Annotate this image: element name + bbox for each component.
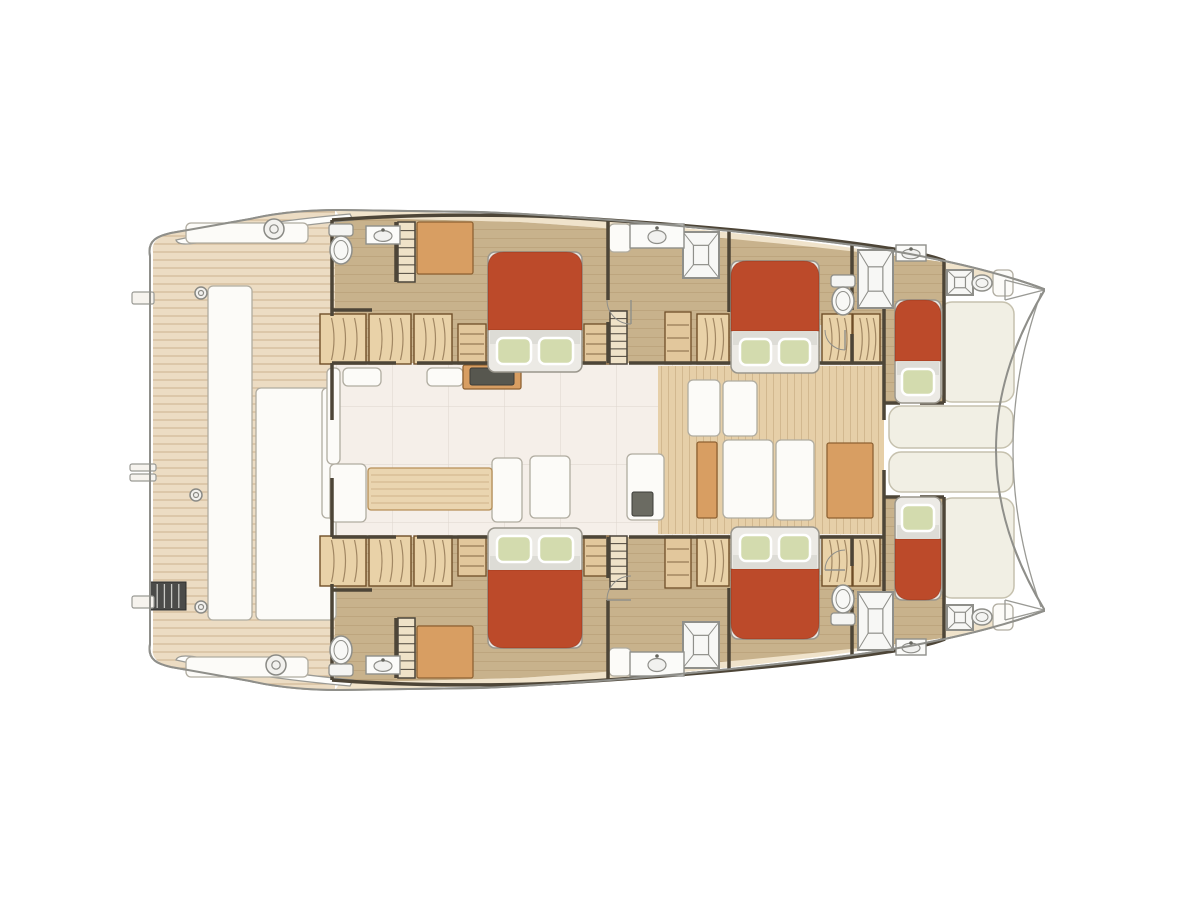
cockpit-bench bbox=[208, 286, 252, 620]
sink-stbd-aft bbox=[366, 656, 400, 674]
pillow bbox=[902, 369, 934, 395]
shelf-unit-2 bbox=[665, 312, 691, 364]
transom-step-1 bbox=[130, 464, 156, 471]
winch-outer bbox=[195, 287, 207, 299]
aft-bench-port bbox=[186, 223, 308, 243]
wardrobe-front bbox=[697, 536, 729, 586]
deck-plan-svg bbox=[0, 0, 1200, 900]
deck-winch-2 bbox=[195, 287, 207, 299]
pillow bbox=[902, 505, 934, 531]
wardrobe-front bbox=[369, 536, 411, 586]
head-shelf-port bbox=[609, 224, 631, 252]
deck-winch-1 bbox=[266, 655, 286, 675]
bed-stbd-aft-cabin bbox=[488, 528, 582, 648]
bed-stbd-forepeak bbox=[895, 497, 941, 600]
wardrobe-5 bbox=[853, 314, 880, 364]
wardrobe-10 bbox=[822, 536, 852, 586]
catamaran-floor-plan bbox=[0, 0, 1200, 900]
pillow bbox=[740, 535, 771, 561]
desk-stbd bbox=[417, 626, 473, 678]
sink-stbd-mid bbox=[630, 652, 684, 676]
wardrobe-11 bbox=[853, 536, 880, 586]
toilet-port-fwd bbox=[831, 275, 855, 315]
desk-port bbox=[417, 222, 473, 274]
pillow bbox=[779, 339, 810, 365]
salon-island-seat bbox=[530, 456, 570, 518]
stairs-stbd-mid bbox=[610, 536, 627, 589]
toilet-bow-port bbox=[972, 275, 992, 291]
salon-cabinet-b bbox=[427, 368, 463, 386]
sink-basin bbox=[374, 231, 392, 242]
deck-winch-3 bbox=[190, 489, 202, 501]
wardrobe-7 bbox=[369, 536, 411, 586]
toilet-bowl bbox=[972, 609, 992, 625]
winch-outer bbox=[190, 489, 202, 501]
sink-port-mid bbox=[630, 224, 684, 248]
head-shelf-stbd bbox=[609, 648, 631, 676]
stairs-port-mid bbox=[610, 311, 627, 364]
transom-step-2 bbox=[130, 474, 156, 481]
wardrobe-front bbox=[697, 314, 729, 364]
pillow bbox=[539, 338, 573, 364]
wardrobe-8 bbox=[414, 536, 452, 586]
salon-cabinet-a bbox=[343, 368, 381, 386]
swim-ladder bbox=[150, 582, 186, 610]
foredeck-pad-mid-b bbox=[889, 452, 1013, 492]
pillow bbox=[539, 536, 573, 562]
bed-duvet bbox=[488, 252, 582, 330]
toilet-port-aft bbox=[329, 224, 353, 264]
shower-stbd-fwd bbox=[858, 592, 893, 650]
bed-duvet bbox=[488, 570, 582, 648]
sink-faucet bbox=[381, 228, 385, 232]
wardrobe-1 bbox=[369, 314, 411, 364]
shower-port-mid bbox=[683, 232, 719, 278]
shower-stbd-mid bbox=[683, 622, 719, 668]
wardrobe-0 bbox=[320, 314, 366, 364]
sink-faucet bbox=[381, 658, 385, 662]
wardrobe-2 bbox=[414, 314, 452, 364]
wardrobe-front bbox=[369, 314, 411, 364]
shelf-unit-5 bbox=[665, 536, 691, 588]
bed-duvet bbox=[731, 261, 819, 331]
fwd-cabinet bbox=[827, 443, 873, 518]
wardrobe-3 bbox=[697, 314, 729, 364]
bed-stbd-mid-cabin bbox=[731, 527, 819, 639]
wardrobe-front bbox=[414, 314, 452, 364]
foredeck-pad-mid-a bbox=[889, 406, 1013, 448]
dinette-table bbox=[368, 468, 492, 510]
winch-outer bbox=[264, 219, 284, 239]
bed-duvet bbox=[895, 300, 941, 361]
sink-basin bbox=[374, 661, 392, 672]
galley-sink-basin bbox=[632, 492, 653, 516]
shelf-unit-0 bbox=[458, 324, 486, 364]
shower-bow-port bbox=[947, 270, 973, 295]
pillow bbox=[497, 536, 531, 562]
bed-port-mid-cabin bbox=[731, 261, 819, 373]
winch-outer bbox=[195, 601, 207, 613]
bed-port-forepeak bbox=[895, 300, 941, 403]
ladder-body bbox=[150, 582, 186, 610]
wardrobe-4 bbox=[822, 314, 852, 364]
pillow bbox=[497, 338, 531, 364]
fwd-door-panel bbox=[723, 440, 773, 518]
tables-layer bbox=[368, 468, 492, 510]
shelf-unit-4 bbox=[584, 536, 610, 576]
dinette-seat-fwd bbox=[492, 458, 522, 522]
winch-outer bbox=[266, 655, 286, 675]
dinette-seat-aft bbox=[330, 464, 366, 522]
shower-port-fwd bbox=[858, 250, 893, 308]
pillow bbox=[740, 339, 771, 365]
aft-bench-stbd bbox=[186, 657, 308, 677]
deck-winch-4 bbox=[195, 601, 207, 613]
sink-faucet bbox=[909, 247, 913, 251]
shower-bow-stbd bbox=[947, 605, 973, 630]
sink-faucet bbox=[909, 641, 913, 645]
wardrobe-front bbox=[414, 536, 452, 586]
bed-duvet bbox=[895, 539, 941, 600]
toilet-tank bbox=[329, 224, 353, 236]
bed-port-aft-cabin bbox=[488, 252, 582, 372]
bed-duvet bbox=[731, 569, 819, 639]
fwd-wood-pillar bbox=[697, 442, 717, 518]
glass-door-a bbox=[688, 380, 720, 436]
pillow bbox=[779, 535, 810, 561]
deck-winch-0 bbox=[264, 219, 284, 239]
toilet-bow-stbd bbox=[972, 609, 992, 625]
toilet-tank bbox=[831, 275, 855, 287]
wardrobe-6 bbox=[320, 536, 366, 586]
toilet-bowl bbox=[972, 275, 992, 291]
toilet-tank bbox=[329, 664, 353, 676]
wardrobe-9 bbox=[697, 536, 729, 586]
shelf-unit-3 bbox=[458, 536, 486, 576]
glass-door-b bbox=[723, 381, 757, 436]
sink-port-aft bbox=[366, 226, 400, 244]
wardrobe-front bbox=[320, 536, 366, 586]
toilet-stbd-aft bbox=[329, 636, 353, 676]
sink-basin bbox=[648, 659, 666, 672]
shelf-unit-1 bbox=[584, 324, 610, 364]
sink-faucet bbox=[655, 654, 659, 658]
fwd-locker-panel bbox=[776, 440, 814, 520]
wardrobe-front bbox=[320, 314, 366, 364]
toilet-stbd-fwd bbox=[831, 585, 855, 625]
toilet-tank bbox=[831, 613, 855, 625]
sink-basin bbox=[648, 231, 666, 244]
sink-faucet bbox=[655, 226, 659, 230]
